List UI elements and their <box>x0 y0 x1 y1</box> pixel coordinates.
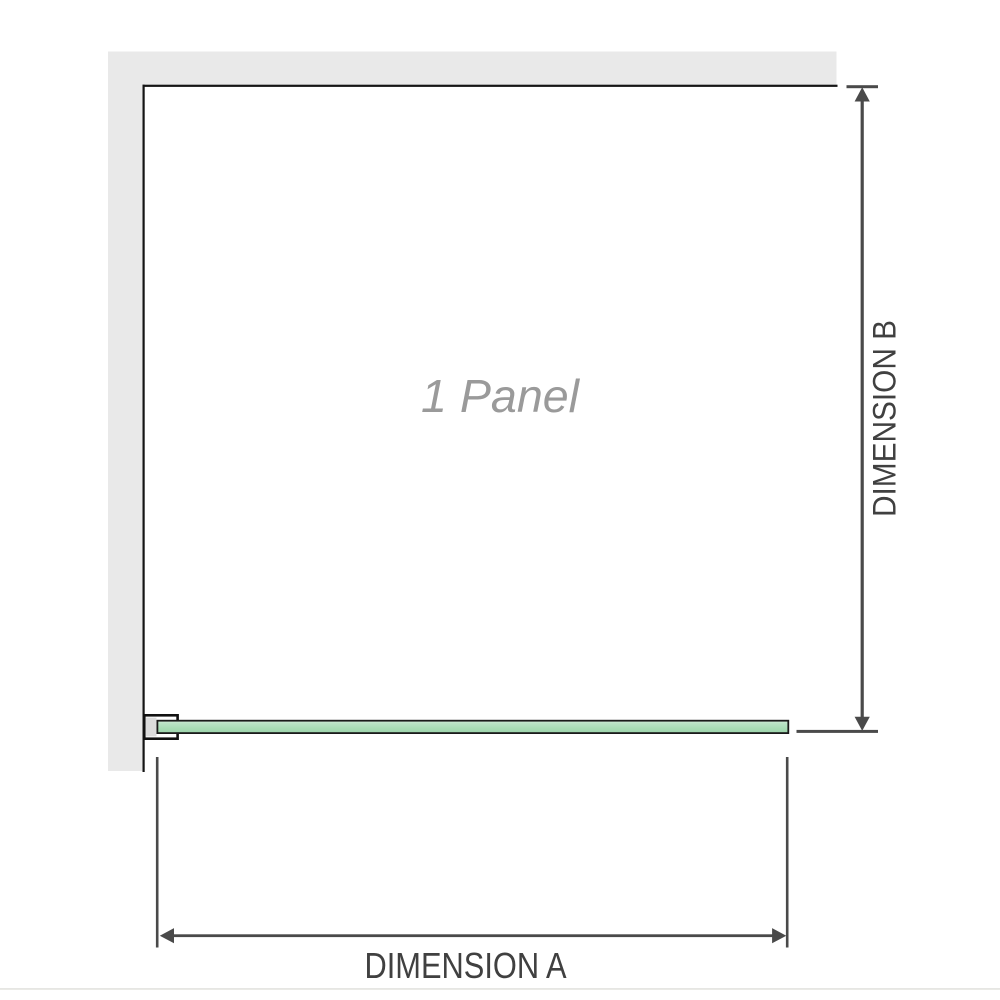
svg-text:1 Panel: 1 Panel <box>421 370 581 422</box>
svg-text:DIMENSION B: DIMENSION B <box>867 320 903 517</box>
svg-text:DIMENSION A: DIMENSION A <box>365 945 567 986</box>
